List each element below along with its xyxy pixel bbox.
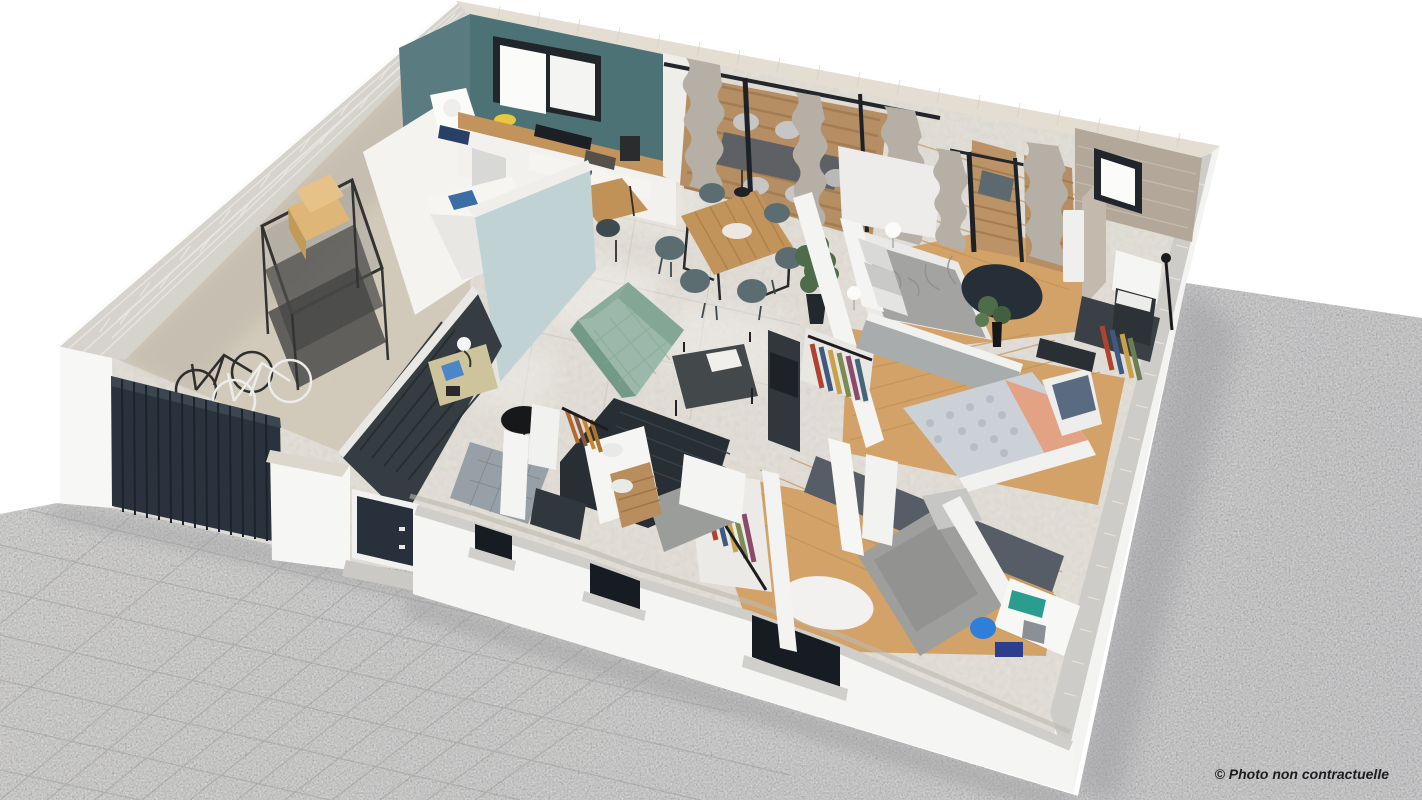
svg-text:© Photo non contractuelle: © Photo non contractuelle — [1215, 766, 1390, 782]
